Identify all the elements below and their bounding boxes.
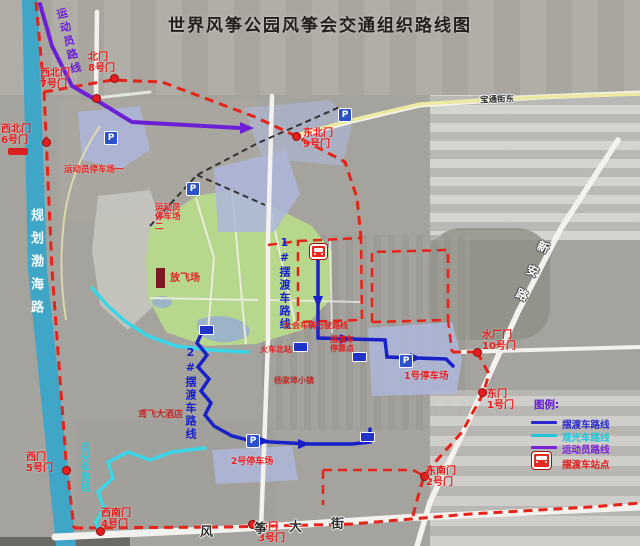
- flying-field-label: 放飞场: [170, 269, 200, 284]
- shuttle-stop-badge: [360, 432, 375, 442]
- shuttle-stop-badge: [293, 342, 308, 352]
- kite-park-traffic-map: P P P P P 世界风筝公园风筝会交通组织路线图 北门8号门 西北门7号门 …: [0, 0, 640, 546]
- gate-dot-west5: [62, 466, 71, 475]
- parking-label-athlete2: 运动员停车场二: [155, 204, 185, 232]
- hotel-label: 鸢飞大酒店: [138, 407, 183, 420]
- town-label: 杨家埠小镇: [274, 375, 314, 386]
- map-title: 世界风筝公园风筝会交通组织路线图: [0, 11, 640, 36]
- gate-label-east-1: 东门1号门: [487, 389, 514, 411]
- legend-swatch-sightseeing: [531, 434, 557, 437]
- gate-dot-northeast9: [292, 132, 301, 141]
- road-label-northeast-street: 宝通街东: [480, 92, 514, 105]
- legend-item-bus-station: 摆渡车站点: [562, 457, 610, 471]
- shuttle-stop-label-line2: 停靠点: [330, 345, 354, 354]
- route-label-shuttle1: 1#摆渡车路线: [276, 236, 292, 331]
- parking-icon-lot2: P: [246, 434, 260, 448]
- parking-label-lot2: 2号停车场: [231, 458, 273, 468]
- gate-dot-north: [110, 74, 119, 83]
- route-label-sightseeing: 观光车路线: [76, 442, 91, 492]
- gate-label-northwest-7: 西北门7号门: [40, 68, 70, 90]
- gate-label-west-5: 西门5号门: [26, 452, 53, 474]
- route-label-shuttle2: 2#摆渡车路线: [182, 346, 198, 441]
- gate-label-water-10: 水厂门10号门: [482, 330, 516, 352]
- bus-station-icon: [310, 244, 327, 259]
- gate-label-southwest-4: 西南门4号门: [101, 508, 131, 530]
- legend-title: 图例:: [534, 397, 559, 412]
- road-label-fengzheng-2: 筝: [254, 518, 267, 537]
- parking-label-athlete1: 运动员停车场一: [64, 166, 124, 175]
- gate-label-north-8: 北门8号门: [88, 52, 115, 74]
- shuttle-stop-badge: [199, 325, 214, 335]
- gate-dot-water10: [473, 348, 482, 357]
- road-label-fengzheng-4: 街: [331, 513, 344, 532]
- legend-item-shuttle: 摆渡车路线: [562, 417, 610, 431]
- legend-bus-station-icon: [532, 452, 551, 469]
- legend-item-athlete: 运动员路线: [562, 442, 610, 456]
- parking-icon-northeast: P: [338, 108, 352, 122]
- gate-dot-northwest7: [92, 94, 101, 103]
- parking-icon-athlete1: P: [104, 131, 118, 145]
- stage-marker: [156, 268, 165, 288]
- legend-swatch-athlete: [531, 446, 557, 449]
- road-label-fengzheng-3: 大: [289, 516, 302, 535]
- road-label-fengzheng-1: 风: [200, 521, 213, 540]
- parking-icon-lot1: P: [399, 354, 413, 368]
- gate-label-southeast-2: 东南门2号门: [426, 466, 456, 488]
- rail-station-label: 火车北站: [260, 346, 292, 355]
- gate-dot-west6: [42, 138, 51, 147]
- legend-swatch-shuttle: [531, 421, 557, 424]
- gate-label-northeast-9: 东北门9号门: [303, 128, 333, 150]
- social-vehicle-route-label: 社会车辆行驶路线: [284, 322, 348, 331]
- parking-icon-athlete2: P: [186, 182, 200, 196]
- gate-label-west-6: 西北门6号门: [1, 124, 31, 146]
- gate-dot-east1: [478, 388, 487, 397]
- gate6-status-badge: [8, 148, 28, 155]
- parking-label-lot1: 1号停车场: [404, 372, 449, 382]
- road-label-bohai: 规划渤海路: [26, 208, 45, 323]
- shuttle-stop-badge: [352, 352, 367, 362]
